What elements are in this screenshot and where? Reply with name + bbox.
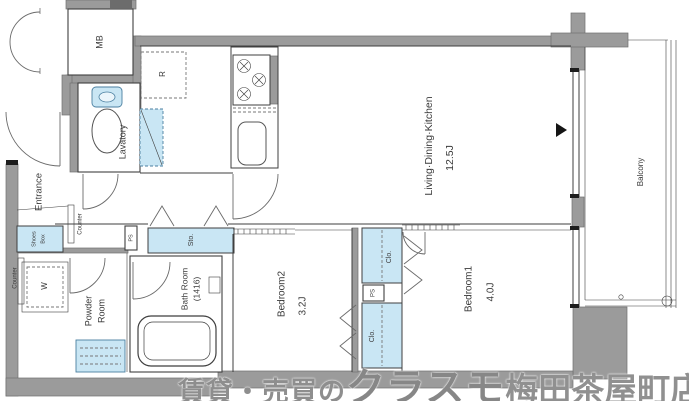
wall-dark-segment <box>110 0 132 8</box>
kitchen-partition <box>270 56 278 104</box>
bath-room-label: Bath Room <box>179 268 189 311</box>
bedroom2-size-label: 3.2J <box>298 297 309 316</box>
lavatory-room: Lavatory <box>78 83 140 209</box>
toilet-lid <box>99 92 115 102</box>
ldk-boundary: Living·Dining·Kitchen 12.5J <box>140 46 571 234</box>
closet-label: Clo. <box>386 251 393 264</box>
powder-door-arc <box>70 258 105 293</box>
closet-label: Clo. <box>369 330 376 343</box>
bathtub-inner <box>144 322 210 360</box>
kitchen-sink <box>238 122 266 165</box>
kitchen: R <box>140 47 278 168</box>
shoes-box-label: Shoes <box>31 231 37 247</box>
bath-size-label: (1416) <box>191 277 201 302</box>
washer-label: W <box>40 282 49 290</box>
sliding-door-hatch-bedroom2 <box>233 229 295 234</box>
storage-label: Sto. <box>188 234 195 247</box>
ldk-size-label: 12.5J <box>444 145 456 171</box>
balcony: Balcony <box>585 40 676 308</box>
bedroom1-size-label: 4.0J <box>486 283 497 302</box>
lavatory-door-arc <box>83 174 118 209</box>
left-counter <box>18 258 24 304</box>
entrance-label: Entrance <box>34 173 45 211</box>
bedroom2-label: Bedroom2 <box>277 270 288 317</box>
shoes-box-label: Box <box>40 234 46 244</box>
bedroom2: Bedroom2 3.2J <box>233 228 352 372</box>
powder-room-label: Powder <box>83 296 93 327</box>
mb-door-arc <box>10 42 40 72</box>
bedroom1: Bedroom1 4.0J <box>402 228 497 372</box>
bath-room: Bath Room (1416) <box>127 253 222 372</box>
ps-label: PS <box>371 289 377 297</box>
ps-label: PS <box>128 234 134 242</box>
bedroom1-label: Bedroom1 <box>464 265 475 312</box>
balcony-label: Balcony <box>636 158 645 186</box>
ldk-label: Living·Dining·Kitchen <box>423 96 435 195</box>
powder-room-label: Room <box>96 299 106 323</box>
lavatory-label: Lavatory <box>117 124 127 159</box>
windows <box>556 68 579 308</box>
hall-storage: Sto. <box>148 206 234 253</box>
mb-label: MB <box>94 35 104 49</box>
balcony-drain-small <box>619 295 623 299</box>
mb-door-arc <box>10 12 40 42</box>
floorplan-drawing: MB Lavatory R <box>0 0 689 401</box>
entrance-door-arc <box>6 112 60 166</box>
folding-door <box>150 206 174 226</box>
window-direction-marker <box>556 123 567 137</box>
hall-ldk-door-arc <box>233 174 278 219</box>
closet-folding-door <box>404 266 422 294</box>
balcony-drain <box>662 296 672 306</box>
meter-box: MB <box>10 8 133 75</box>
refrigerator-label: R <box>158 71 167 77</box>
sliding-door-hatch-bedroom1 <box>402 225 460 230</box>
floorplan-image: MB Lavatory R <box>0 0 689 401</box>
powder-room: W Counter Powder Room <box>13 258 125 372</box>
counter-label: Counter <box>13 267 19 288</box>
folding-door <box>204 206 228 226</box>
